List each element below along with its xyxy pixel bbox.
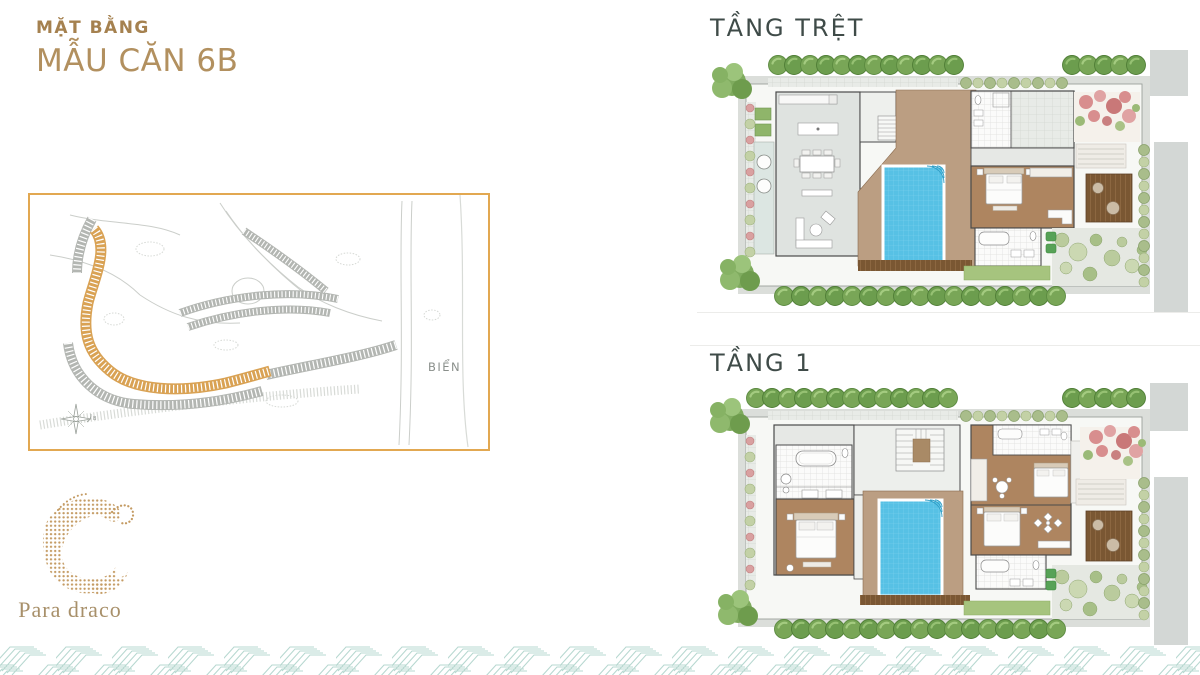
reflecting-pond <box>754 108 774 254</box>
large-tree <box>710 398 750 434</box>
bathroom-bottom <box>975 228 1041 266</box>
bathtub <box>981 560 1009 572</box>
section-divider-2 <box>690 345 1200 346</box>
bathroom-top <box>971 91 1074 148</box>
floor-plan-first <box>708 383 1190 645</box>
brochure-page: { "header": { "subtitle": "MẶT BẰNG", "t… <box>0 0 1200 675</box>
swimming-pool <box>883 166 944 263</box>
kitchen-counter <box>779 95 837 104</box>
driveway <box>1150 50 1188 312</box>
section-divider-1 <box>697 312 1200 313</box>
pool-deck <box>860 491 970 605</box>
master-bedroom <box>971 166 1074 228</box>
console <box>1038 541 1070 548</box>
dragon-dots-icon <box>28 486 148 598</box>
map-roads <box>50 195 468 447</box>
tree-row-bottom <box>775 620 1066 639</box>
terrace-steps <box>1076 144 1126 168</box>
brand-name: Para draco <box>8 597 132 623</box>
bathroom-bottom <box>976 555 1046 589</box>
terrace-steps <box>1076 479 1126 505</box>
bathtub <box>979 232 1009 245</box>
tree-row-top-right <box>1063 56 1146 75</box>
tea-table <box>996 481 1008 493</box>
timber-strip <box>858 260 972 271</box>
wave-pattern-footer <box>0 639 1200 675</box>
large-tree <box>712 63 752 99</box>
wooden-deck <box>1086 511 1132 561</box>
map-highlighted-lots <box>86 229 270 389</box>
floor-label-ground: TẦNG TRỆT <box>710 14 864 42</box>
top-path <box>768 411 958 420</box>
page-subtitle: MẶT BẰNG <box>36 18 238 38</box>
timber-strip <box>860 595 970 605</box>
console <box>802 190 832 196</box>
tree-row-bottom <box>775 287 1066 306</box>
sea-label: BIỂN <box>428 358 461 374</box>
gravel-garden <box>1046 565 1147 619</box>
lawn-strip <box>964 266 1050 280</box>
compass-letter: B <box>93 416 97 422</box>
wardrobe <box>971 459 987 501</box>
swimming-pool <box>879 500 942 596</box>
hedge-band <box>961 78 1068 89</box>
floor-label-first: TẦNG 1 <box>710 349 813 377</box>
floor-plan-ground <box>708 50 1190 312</box>
lawn-strip <box>964 601 1050 615</box>
page-title: MẪU CĂN 6B <box>36 43 238 79</box>
gravel-garden <box>1046 228 1147 286</box>
hedge-band <box>961 411 1068 422</box>
wardrobe <box>1030 168 1072 177</box>
driveway <box>1150 383 1188 645</box>
flowering-garden <box>1074 90 1140 142</box>
top-path <box>768 78 958 87</box>
flowering-garden <box>1080 425 1146 479</box>
wooden-deck <box>1086 174 1132 222</box>
bedroom-left <box>776 499 854 575</box>
tree-row-top <box>769 56 964 75</box>
page-header: MẶT BẰNG MẪU CĂN 6B <box>36 18 238 79</box>
tree-row-top-right <box>1063 389 1146 408</box>
living-dining-room <box>776 92 860 256</box>
site-map-drawing: BIỂN B <box>30 195 488 449</box>
site-map-panel: BIỂN B <box>28 193 490 451</box>
corridor <box>971 148 1074 166</box>
brand-logo <box>28 486 148 598</box>
tree-row-top <box>747 389 958 408</box>
foyer-stairs <box>860 92 898 142</box>
